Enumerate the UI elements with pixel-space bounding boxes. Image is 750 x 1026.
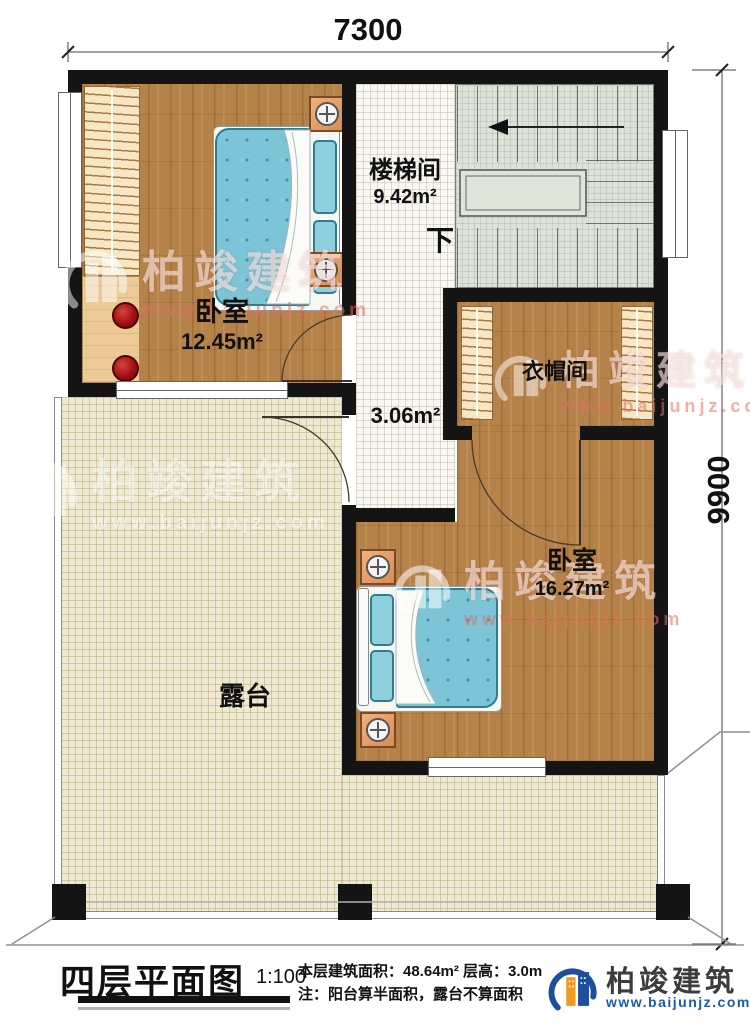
brand-url: www.baijunjz.com — [606, 994, 750, 1010]
window — [662, 130, 688, 258]
room-label-cloakroom-name: 衣帽间 — [455, 360, 655, 384]
window — [428, 757, 546, 777]
lamp-icon — [314, 258, 338, 282]
stats-line: 本层建筑面积：48.64m² 层高：3.0m — [298, 960, 542, 981]
stair-flight-lower — [457, 228, 654, 288]
pillow — [370, 594, 394, 646]
room-label-bedroom1-area: 12.45m² — [152, 330, 292, 354]
floor-plan-canvas: 柏竣建筑 www.baijunjz.com 柏竣建筑 www.baijunjz.… — [0, 0, 750, 1026]
wall — [457, 426, 472, 440]
column — [338, 884, 372, 920]
hallway-floor — [356, 84, 455, 508]
wall — [68, 70, 668, 84]
nightstand — [360, 712, 396, 748]
brand-logo-icon — [546, 962, 600, 1016]
room-label-bedroom2-name: 卧室 — [455, 548, 689, 576]
column — [52, 884, 86, 920]
column — [656, 884, 690, 920]
nightstand — [308, 252, 344, 287]
room-label-hallway-area: 3.06m² — [356, 404, 455, 428]
terrace-floor — [61, 397, 342, 918]
stair-flight-turn — [586, 160, 654, 224]
pillow — [370, 650, 394, 702]
note-line: 注：阳台算半面积，露台不算面积 — [298, 983, 523, 1004]
lamp-icon — [315, 102, 339, 126]
wall — [443, 288, 668, 302]
room-label-bedroom2-area: 16.27m² — [455, 578, 689, 600]
title-underline-shadow — [78, 1007, 290, 1010]
wall — [342, 508, 455, 522]
window — [58, 92, 82, 268]
wall — [342, 397, 356, 415]
lamp-icon — [366, 555, 390, 579]
mattress — [215, 128, 310, 306]
terrace-floor — [342, 775, 657, 918]
nightstand — [360, 549, 396, 585]
title-underline — [78, 996, 290, 1003]
room-label-terrace-name: 露台 — [195, 682, 295, 711]
stool — [112, 302, 139, 329]
stair-flight-upper — [457, 86, 654, 162]
room-label-stairwell-area: 9.42m² — [345, 186, 465, 208]
dimension-right-label: 9900 — [701, 435, 737, 545]
room-label-stairwell-name: 楼梯间 — [345, 158, 465, 184]
headboard — [358, 588, 369, 706]
wall — [342, 505, 356, 775]
window — [116, 381, 288, 399]
stair-direction-label: 下 — [418, 226, 462, 257]
wardrobe-hangers — [84, 86, 140, 276]
stool — [112, 355, 139, 382]
mattress — [396, 588, 498, 708]
nightstand — [309, 96, 345, 132]
terrace-railing — [54, 397, 62, 918]
lamp-icon — [366, 718, 390, 742]
pillow — [313, 140, 337, 214]
dimension-top-label: 7300 — [323, 12, 413, 48]
room-label-bedroom1-name: 卧室 — [152, 298, 292, 328]
